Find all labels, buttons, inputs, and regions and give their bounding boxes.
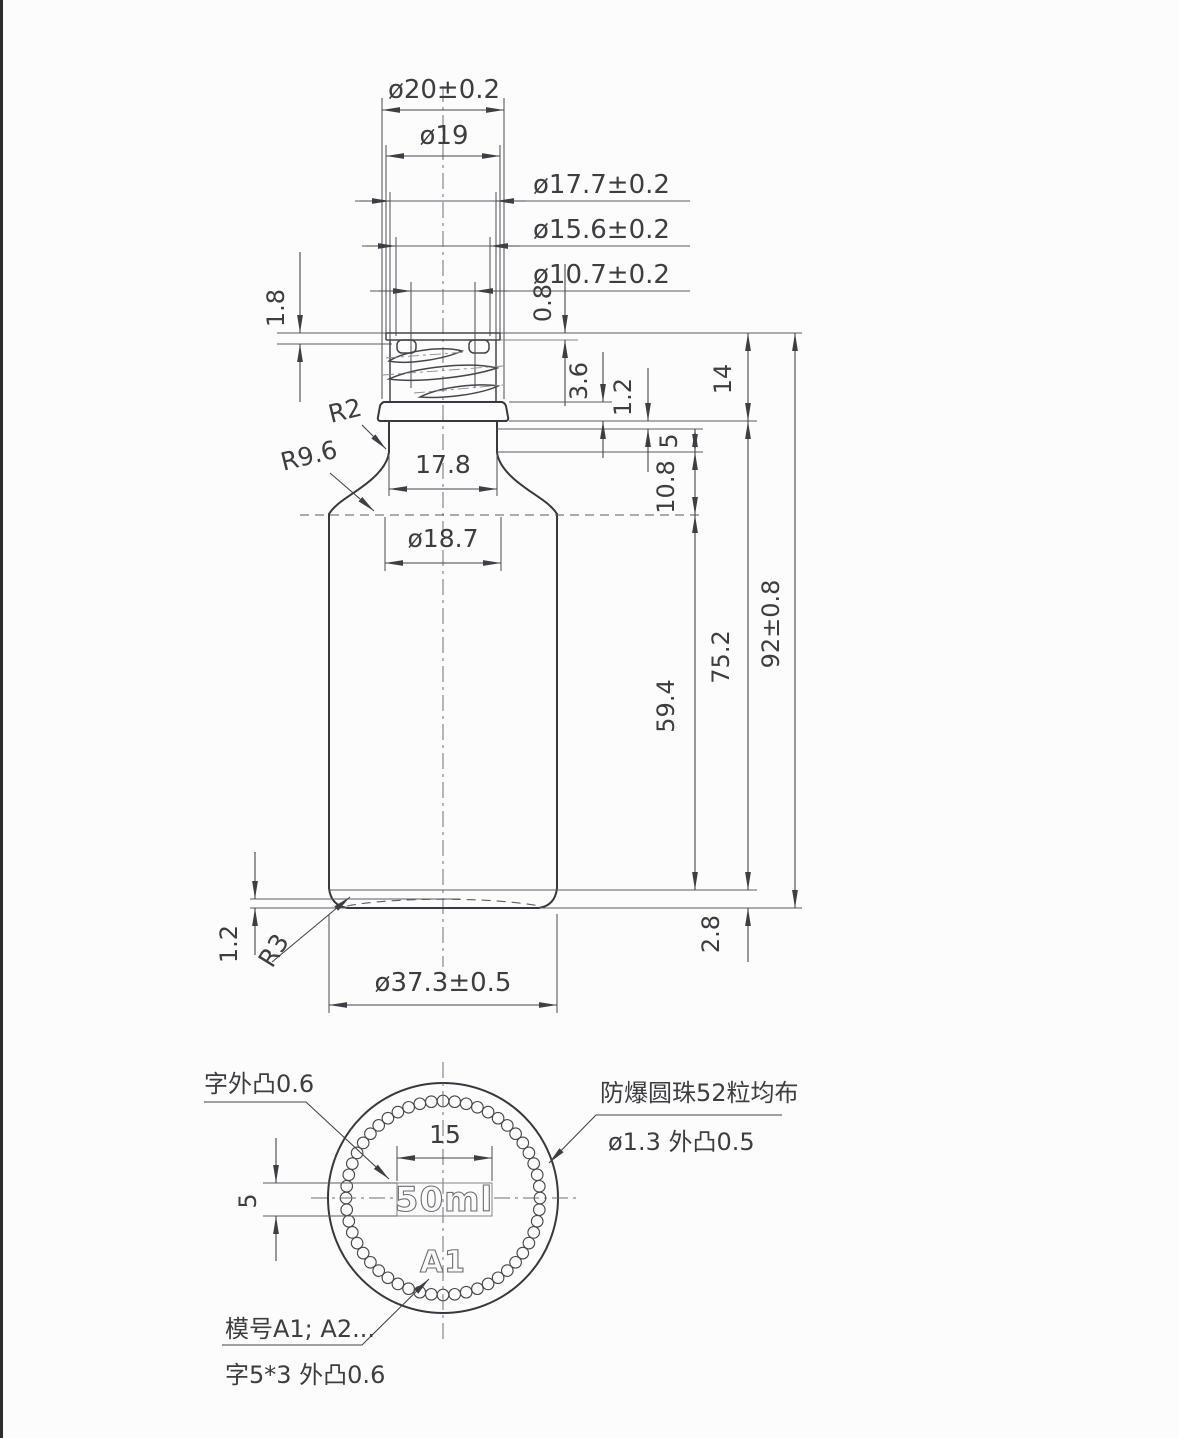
label-radius-r3: R3 bbox=[253, 929, 295, 973]
anti-burst-ball bbox=[460, 1098, 472, 1110]
dim-emboss-width: 15 bbox=[429, 1120, 461, 1149]
anti-burst-ball bbox=[531, 1215, 543, 1227]
dim-ring-height: 1.2 bbox=[609, 378, 637, 416]
anti-burst-ball bbox=[341, 1181, 353, 1193]
anti-burst-ball bbox=[351, 1237, 363, 1249]
anti-burst-ball bbox=[523, 1147, 535, 1159]
dim-body-height: 59.4 bbox=[652, 679, 680, 732]
anti-burst-ball bbox=[528, 1227, 540, 1239]
anti-burst-ball bbox=[343, 1215, 355, 1227]
dim-neck-dia-2: ø15.6±0.2 bbox=[533, 215, 670, 245]
dim-lines-5-bottom bbox=[263, 1138, 397, 1261]
mold-id-emboss-text: A1 bbox=[420, 1245, 466, 1280]
dim-base-inset: 1.2 bbox=[215, 925, 243, 963]
anti-burst-ball bbox=[472, 1283, 484, 1295]
dim-collar-height: 3.6 bbox=[565, 362, 593, 400]
anti-burst-ball bbox=[534, 1181, 546, 1193]
anti-burst-ball bbox=[343, 1169, 355, 1181]
dim-body-dia: ø37.3±0.5 bbox=[375, 968, 512, 998]
note-balls-line2: ø1.3 外凸0.5 bbox=[608, 1128, 755, 1156]
anti-burst-ball bbox=[482, 1278, 494, 1290]
anti-burst-ball bbox=[347, 1158, 359, 1170]
anti-burst-ball bbox=[426, 1096, 438, 1108]
dim-thread-outer-dia: ø20±0.2 bbox=[388, 75, 500, 105]
anti-burst-ball bbox=[403, 1102, 415, 1114]
note-mold-line2: 字5*3 外凸0.6 bbox=[225, 1361, 385, 1389]
dim-finish-height: 14 bbox=[709, 364, 737, 395]
anti-burst-ball bbox=[472, 1102, 484, 1114]
dim-lines-15 bbox=[397, 1146, 492, 1181]
dim-neck-height: 5 bbox=[655, 433, 683, 448]
anti-burst-ball bbox=[528, 1158, 540, 1170]
anti-burst-ball bbox=[534, 1204, 546, 1216]
anti-burst-ball bbox=[341, 1204, 353, 1216]
anti-burst-ball bbox=[347, 1227, 359, 1239]
anti-burst-ball bbox=[449, 1096, 461, 1108]
bottle-drawing-svg: ø20±0.2 ø19 ø17.7±0.2 ø15.6±0.2 ø10.7±0.… bbox=[0, 0, 1179, 1438]
leader-r2 bbox=[362, 425, 386, 449]
anti-burst-ball bbox=[426, 1289, 438, 1301]
finish-reference-lines bbox=[277, 333, 802, 344]
dim-base-height: 2.8 bbox=[697, 915, 725, 953]
dim-neck-width: 17.8 bbox=[415, 450, 471, 479]
note-balls-line1: 防爆圆珠52粒均布 bbox=[600, 1079, 799, 1107]
dim-lip-dia: ø19 bbox=[420, 121, 469, 151]
anti-burst-ball bbox=[460, 1286, 472, 1298]
note-emboss-height: 字外凸0.6 bbox=[204, 1070, 314, 1098]
dim-neck-dia-1: ø17.7±0.2 bbox=[533, 170, 670, 200]
dim-shoulder-height: 10.8 bbox=[652, 460, 680, 513]
bottom-view-drawing: 50ml A1 15 5 字外凸0.6 防爆圆珠52粒均布 ø1.3 外凸0.5… bbox=[204, 1062, 799, 1389]
dim-total-height: 92±0.8 bbox=[757, 580, 785, 669]
label-radius-r96: R9.6 bbox=[278, 435, 340, 477]
anti-burst-ball bbox=[414, 1098, 426, 1110]
anti-burst-ball bbox=[449, 1289, 461, 1301]
anti-burst-ball bbox=[403, 1283, 415, 1295]
anti-burst-ball bbox=[392, 1106, 404, 1118]
engineering-drawing-page: ø20±0.2 ø19 ø17.7±0.2 ø15.6±0.2 ø10.7±0.… bbox=[0, 0, 1179, 1438]
dim-lip-depth: 1.8 bbox=[262, 289, 290, 327]
dim-emboss-height: 5 bbox=[234, 1193, 262, 1208]
dim-height-752: 75.2 bbox=[707, 630, 735, 683]
dim-neck-base-dia: ø18.7 bbox=[408, 524, 479, 553]
dim-lip-height: 0.8 bbox=[529, 284, 557, 322]
volume-emboss-text: 50ml bbox=[395, 1180, 493, 1220]
leader-emboss-note bbox=[204, 1102, 389, 1179]
anti-burst-ball bbox=[531, 1169, 543, 1181]
note-mold-line1: 模号A1; A2... bbox=[225, 1315, 375, 1343]
side-view-drawing: ø20±0.2 ø19 ø17.7±0.2 ø15.6±0.2 ø10.7±0.… bbox=[215, 75, 802, 1013]
label-radius-r2: R2 bbox=[325, 393, 364, 429]
